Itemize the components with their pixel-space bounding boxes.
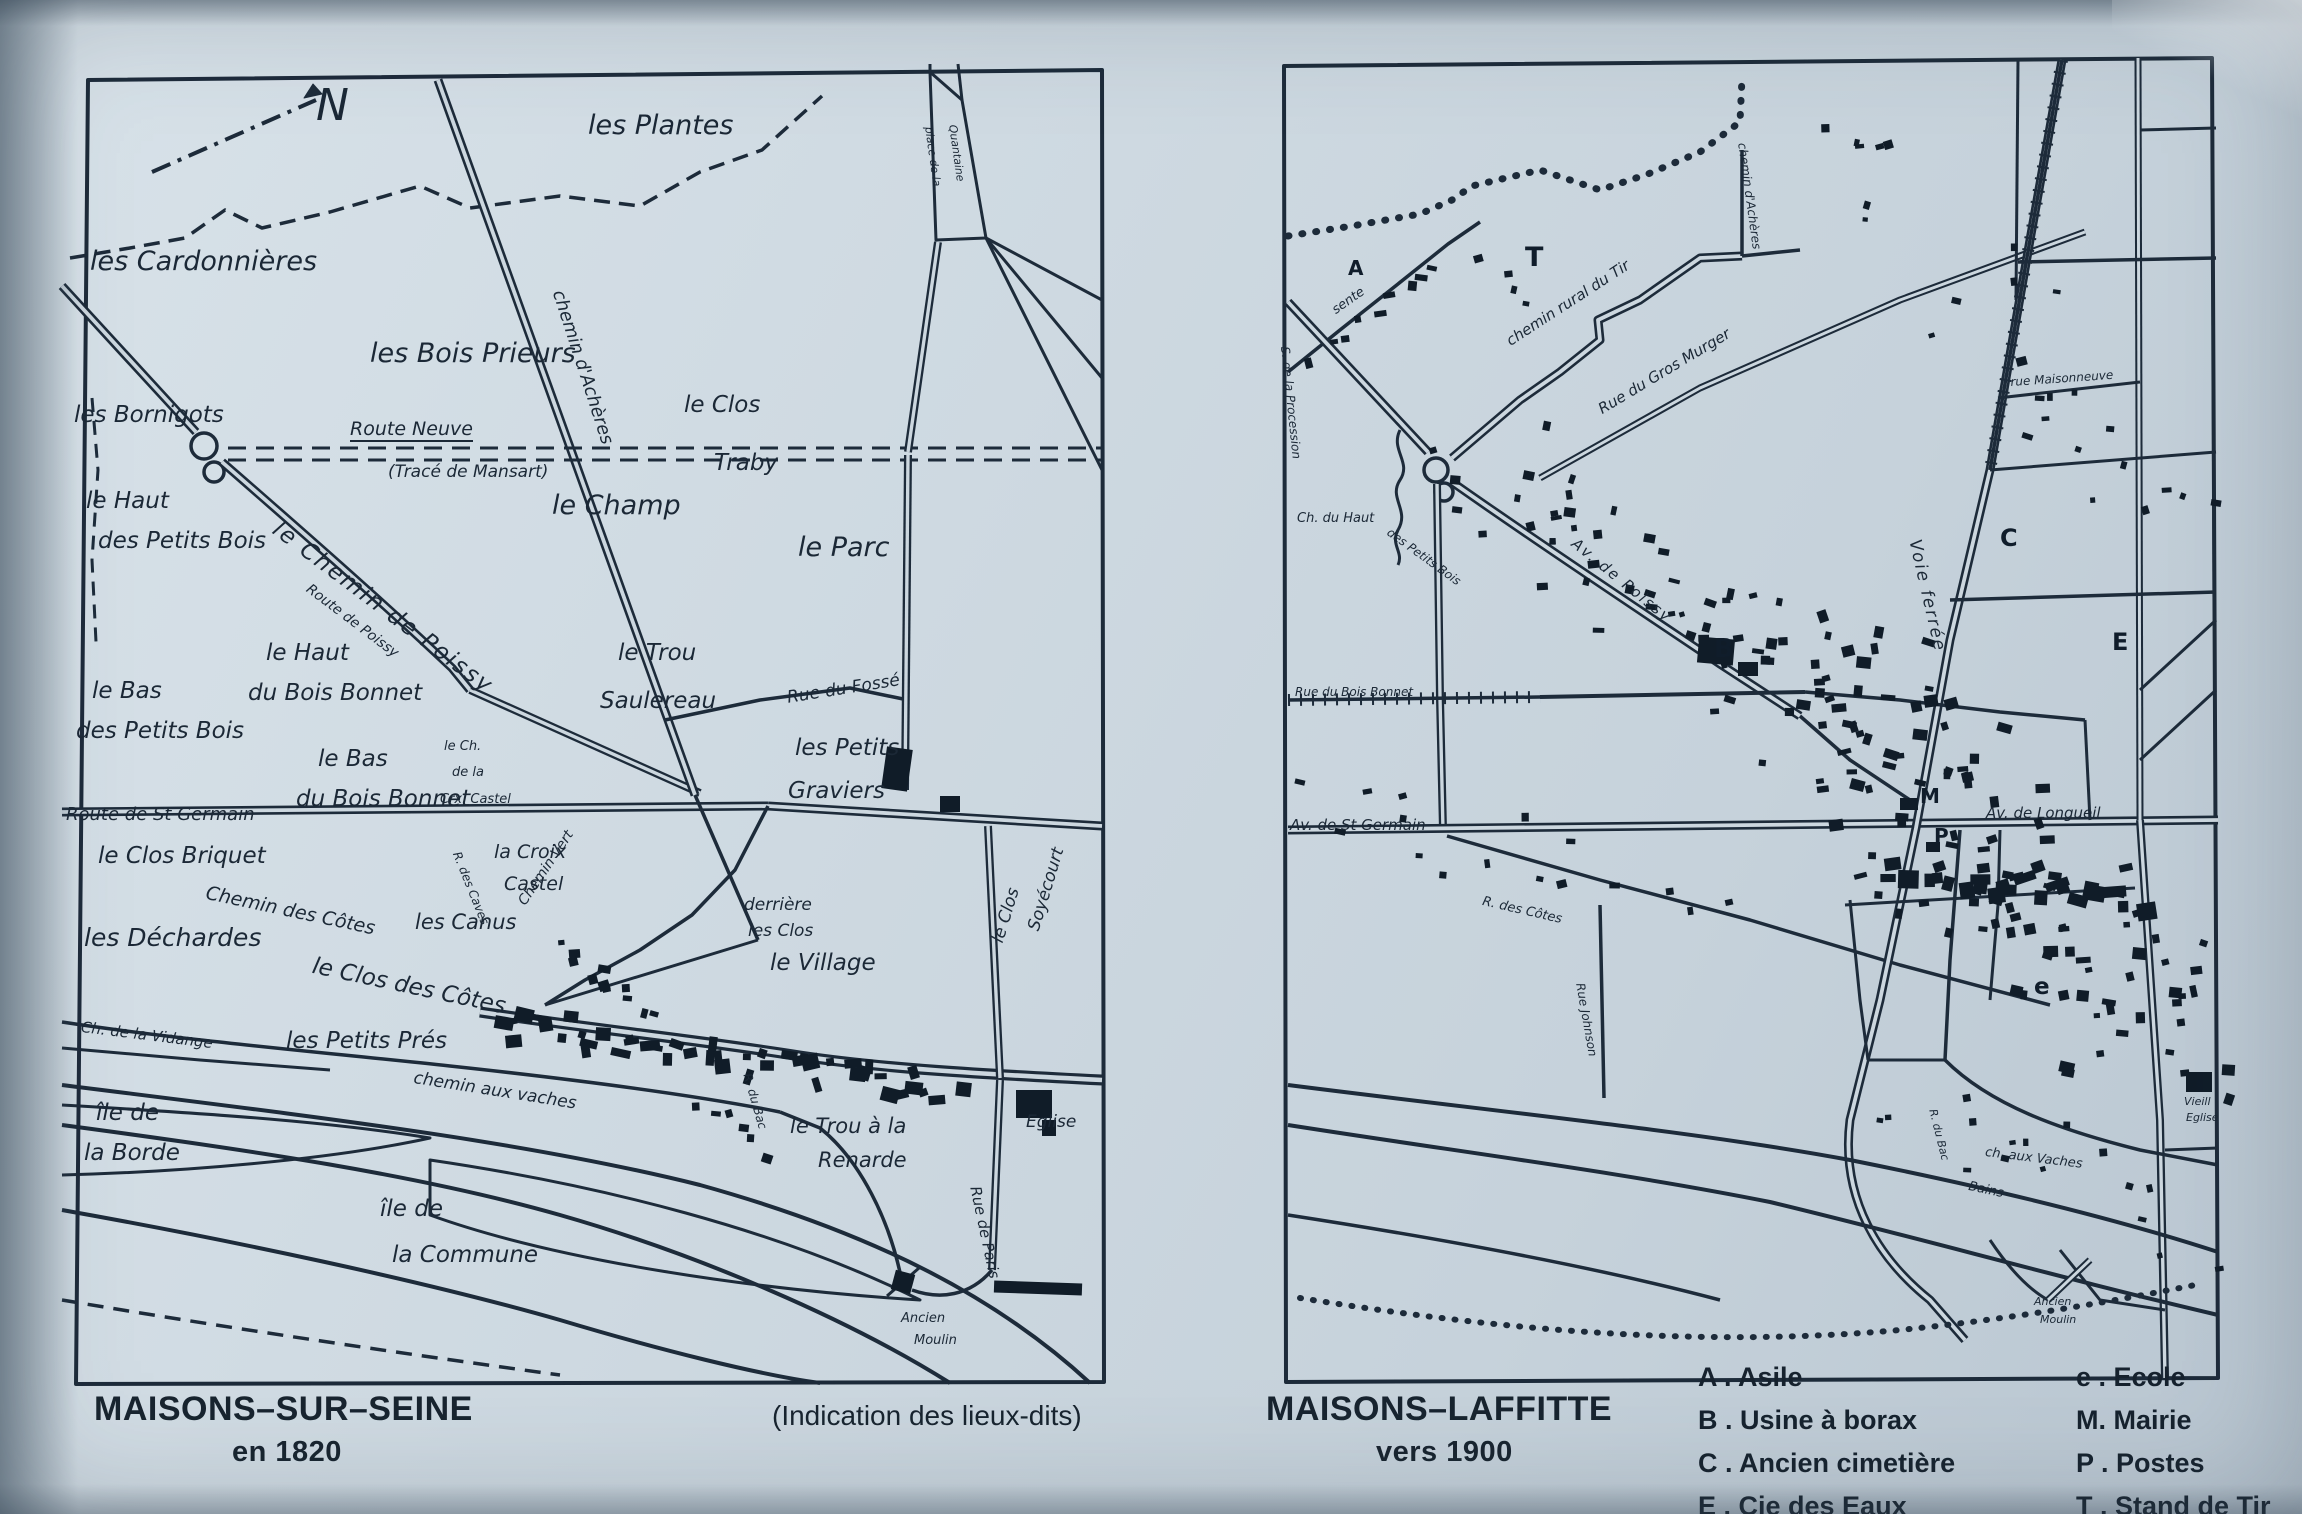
- legend-item: C . Ancien cimetière: [1698, 1442, 1955, 1485]
- page-top-shadow: [0, 0, 2302, 26]
- page-bottom-shadow: [0, 1484, 2302, 1514]
- lieux-dits-note: (Indication des lieux-dits): [772, 1400, 1082, 1432]
- right-map-title-text: MAISONS–LAFFITTE: [1266, 1390, 1612, 1428]
- page-corner-highlight: [2112, 0, 2302, 130]
- left-map-subtitle: en 1820: [232, 1436, 473, 1469]
- legend-item: A . Asile: [1698, 1356, 1955, 1399]
- legend-item: B . Usine à borax: [1698, 1399, 1955, 1442]
- legend-item: M. Mairie: [2076, 1399, 2271, 1442]
- right-map-subtitle: vers 1900: [1376, 1436, 1612, 1469]
- scanned-book-page: Nles Plantesles Cardonnièresles Bois Pri…: [0, 0, 2302, 1514]
- legend-item: P . Postes: [2076, 1442, 2271, 1485]
- right-map-title: MAISONS–LAFFITTE vers 1900: [1266, 1390, 1612, 1469]
- left-map-title-text: MAISONS–SUR–SEINE: [94, 1390, 473, 1428]
- maps-drawing: [0, 0, 2302, 1514]
- page-gutter-shadow: [0, 0, 78, 1514]
- legend-item: e . Ecole: [2076, 1356, 2271, 1399]
- left-map-title: MAISONS–SUR–SEINE en 1820: [94, 1390, 473, 1469]
